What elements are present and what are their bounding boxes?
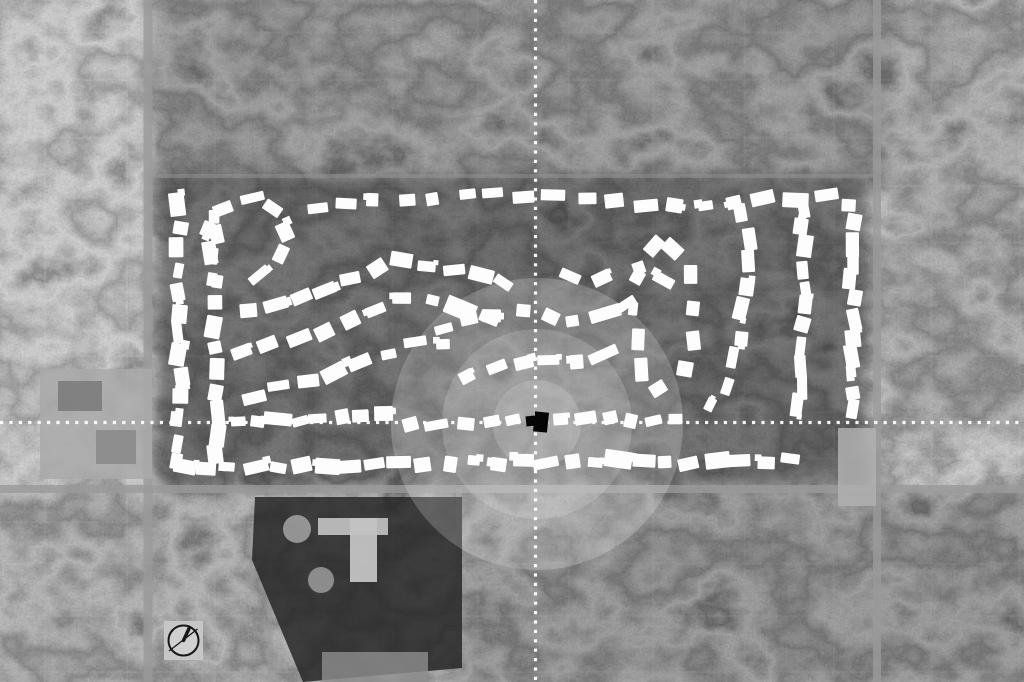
house-notch xyxy=(748,275,756,283)
house-footprint[interactable] xyxy=(512,190,535,203)
house-notch xyxy=(556,354,562,360)
house-footprint[interactable] xyxy=(389,292,411,304)
house-footprint[interactable] xyxy=(482,187,504,198)
house-notch xyxy=(433,260,439,266)
house-footprint[interactable] xyxy=(413,456,432,473)
house-shape xyxy=(565,315,579,328)
house-notch xyxy=(852,340,859,347)
house-shape xyxy=(604,193,624,209)
house-shape xyxy=(386,456,411,469)
road xyxy=(144,0,153,682)
house-footprint[interactable] xyxy=(208,295,223,310)
strip-mall-east xyxy=(838,428,876,506)
house-footprint[interactable] xyxy=(726,454,751,467)
house-footprint[interactable] xyxy=(842,268,857,290)
house-shape xyxy=(564,453,581,469)
house-footprint[interactable] xyxy=(386,456,411,469)
house-footprint[interactable] xyxy=(631,328,645,350)
house-shape xyxy=(482,187,504,198)
house-notch xyxy=(228,416,233,421)
house-footprint[interactable] xyxy=(578,192,596,204)
house-shape xyxy=(632,454,656,468)
house-shape xyxy=(847,289,863,307)
house-shape xyxy=(443,264,466,277)
house-shape xyxy=(541,189,566,201)
house-shape xyxy=(169,237,184,257)
house-shape xyxy=(633,199,658,213)
house-footprint[interactable] xyxy=(335,198,357,210)
house-shape xyxy=(741,249,755,272)
house-shape xyxy=(352,409,369,422)
house-notch xyxy=(389,293,396,300)
house-footprint[interactable] xyxy=(171,304,188,324)
house-footprint[interactable] xyxy=(425,192,439,207)
house-notch xyxy=(486,457,496,467)
house-shape xyxy=(676,360,694,378)
house-footprint[interactable] xyxy=(628,302,639,316)
house-notch xyxy=(193,460,199,466)
house-footprint[interactable] xyxy=(676,360,694,378)
house-footprint[interactable] xyxy=(374,406,396,421)
house-shape xyxy=(172,220,189,236)
house-notch xyxy=(433,337,440,344)
house-notch xyxy=(175,296,184,305)
house-notch xyxy=(846,373,855,382)
house-shape xyxy=(845,212,862,231)
house-notch xyxy=(693,199,703,209)
shade-patch xyxy=(884,0,1024,435)
house-shape xyxy=(796,234,814,258)
house-shape xyxy=(338,459,362,474)
building-south xyxy=(322,652,428,682)
house-notch xyxy=(312,459,319,466)
house-shape xyxy=(206,444,224,465)
house-notch xyxy=(180,340,190,350)
house-footprint[interactable] xyxy=(297,373,320,388)
house-shape xyxy=(512,190,535,203)
road xyxy=(873,0,881,682)
house-footprint[interactable] xyxy=(632,454,656,468)
house-notch xyxy=(797,214,806,223)
aerial-map-viewport[interactable] xyxy=(0,0,1024,682)
house-notch xyxy=(175,385,182,392)
house-shape xyxy=(516,304,531,318)
house-footprint[interactable] xyxy=(169,237,184,257)
house-shape xyxy=(684,265,698,284)
house-shape xyxy=(399,194,416,207)
house-footprint[interactable] xyxy=(172,220,189,236)
house-footprint[interactable] xyxy=(399,194,416,207)
ballfield-south xyxy=(308,567,334,593)
house-shape xyxy=(417,260,436,272)
house-notch xyxy=(389,408,396,415)
house-shape xyxy=(686,300,700,316)
commercial-building-west-2 xyxy=(96,430,136,464)
house-footprint[interactable] xyxy=(482,309,504,322)
house-footprint[interactable] xyxy=(443,455,458,473)
house-footprint[interactable] xyxy=(633,199,658,213)
house-shape xyxy=(239,303,257,318)
house-footprint[interactable] xyxy=(741,249,755,272)
house-shape xyxy=(537,355,559,365)
house-footprint[interactable] xyxy=(206,444,224,465)
house-footprint[interactable] xyxy=(686,330,701,351)
house-shape xyxy=(335,198,357,210)
house-footprint[interactable] xyxy=(443,264,466,277)
house-shape xyxy=(841,199,856,212)
house-footprint[interactable] xyxy=(541,189,566,201)
house-footprint[interactable] xyxy=(239,303,257,318)
house-footprint[interactable] xyxy=(686,300,700,316)
house-notch xyxy=(566,355,574,363)
house-shape xyxy=(845,386,860,401)
house-footprint[interactable] xyxy=(305,413,327,423)
house-shape xyxy=(459,188,476,200)
house-notch xyxy=(218,463,227,472)
house-notch xyxy=(565,412,570,417)
house-footprint[interactable] xyxy=(604,193,624,209)
house-footprint[interactable] xyxy=(684,265,698,284)
house-shape xyxy=(413,456,432,473)
house-shape xyxy=(631,328,645,350)
house-shape xyxy=(658,456,672,469)
ballfield-north xyxy=(283,515,311,543)
house-footprint[interactable] xyxy=(209,358,225,380)
aerial-map-canvas[interactable] xyxy=(0,0,1024,682)
house-notch xyxy=(509,452,518,461)
house-shape xyxy=(443,455,458,473)
house-footprint[interactable] xyxy=(537,354,562,365)
house-footprint[interactable] xyxy=(516,304,531,318)
house-notch xyxy=(808,293,814,299)
house-footprint[interactable] xyxy=(312,457,341,475)
house-footprint[interactable] xyxy=(841,199,856,212)
road xyxy=(148,174,877,178)
house-footprint[interactable] xyxy=(796,261,809,280)
house-footprint[interactable] xyxy=(845,386,860,401)
house-shape xyxy=(726,454,751,467)
house-notch xyxy=(476,454,484,462)
house-notch xyxy=(796,414,802,420)
commercial-building-west xyxy=(58,381,102,411)
house-footprint[interactable] xyxy=(634,357,649,381)
house-shape xyxy=(208,295,223,310)
house-footprint[interactable] xyxy=(658,456,672,469)
house-shape xyxy=(842,268,857,290)
shade-patch xyxy=(150,0,890,185)
house-notch xyxy=(213,397,219,403)
house-footprint[interactable] xyxy=(352,409,369,422)
house-shape xyxy=(686,330,701,351)
house-shape xyxy=(634,357,649,381)
house-shape xyxy=(578,192,596,204)
house-shape xyxy=(209,358,225,380)
house-footprint[interactable] xyxy=(565,315,579,328)
clock-icon-button[interactable] xyxy=(164,621,203,660)
house-notch xyxy=(175,408,184,417)
marker-shape[interactable] xyxy=(533,411,549,432)
house-footprint[interactable] xyxy=(796,234,814,258)
house-notch xyxy=(755,454,762,461)
house-footprint[interactable] xyxy=(847,289,863,307)
house-footprint[interactable] xyxy=(338,459,362,474)
house-shape xyxy=(425,192,439,207)
house-footprint[interactable] xyxy=(845,212,862,231)
house-shape xyxy=(628,302,639,316)
house-notch xyxy=(679,203,686,210)
house-footprint[interactable] xyxy=(564,453,581,469)
house-notch xyxy=(497,313,504,320)
house-shape xyxy=(297,373,320,388)
house-notch xyxy=(177,188,185,196)
house-footprint[interactable] xyxy=(218,462,235,472)
house-footprint[interactable] xyxy=(459,188,476,200)
school-building-main xyxy=(350,518,377,582)
house-notch xyxy=(363,193,370,200)
house-shape xyxy=(796,261,809,280)
house-shape xyxy=(171,304,188,324)
